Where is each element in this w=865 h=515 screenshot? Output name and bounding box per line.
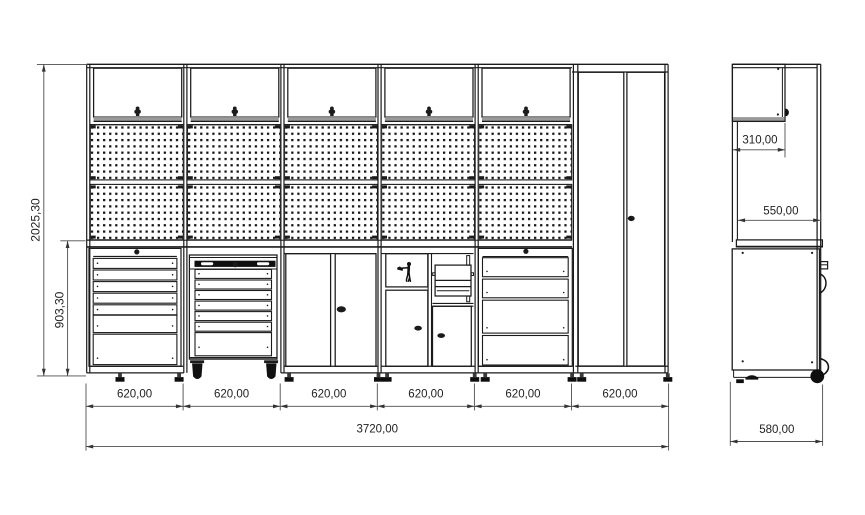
svg-text:2025,30: 2025,30 — [29, 198, 43, 242]
svg-text:620,00: 620,00 — [408, 389, 443, 401]
svg-text:620,00: 620,00 — [505, 389, 540, 401]
svg-text:903,30: 903,30 — [52, 291, 66, 328]
svg-text:620,00: 620,00 — [117, 389, 152, 401]
svg-text:620,00: 620,00 — [214, 389, 249, 401]
svg-text:3720,00: 3720,00 — [357, 424, 399, 436]
svg-text:580,00: 580,00 — [759, 424, 794, 436]
svg-text:620,00: 620,00 — [311, 389, 346, 401]
svg-text:550,00: 550,00 — [763, 206, 798, 218]
svg-text:620,00: 620,00 — [602, 389, 637, 401]
svg-text:310,00: 310,00 — [742, 135, 777, 147]
